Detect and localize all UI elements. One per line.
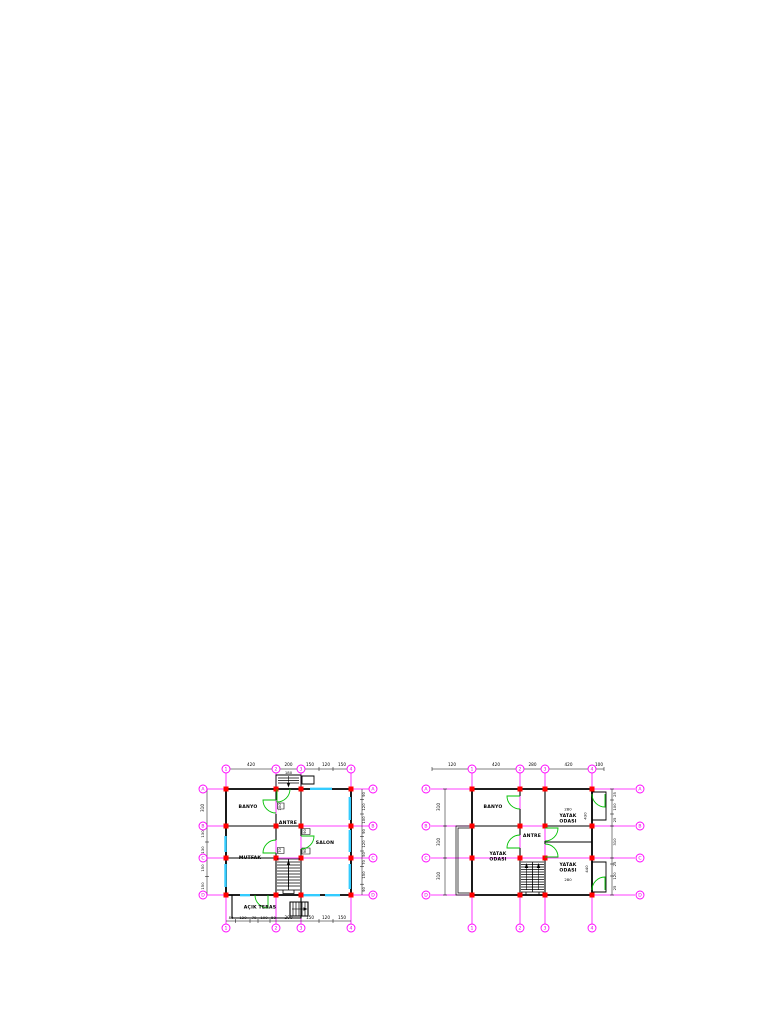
grid-bubble-label: D (201, 893, 205, 899)
dim-label: 100 (260, 915, 268, 920)
room-label-antre: ANTRE (523, 833, 541, 839)
dim-label: 150 (306, 762, 314, 767)
dim-label: 120 (361, 840, 366, 848)
dim-label: 200 (285, 762, 293, 767)
dim-label-porch: 180 (285, 770, 293, 775)
dim-label: 150 (338, 915, 346, 920)
grid-bubble-label: C (638, 856, 641, 862)
dim-label: 90 (361, 887, 366, 892)
entry-porch (276, 775, 314, 789)
porch-stair (278, 776, 299, 788)
dimension-lines (205, 767, 364, 923)
grid-bubble-label: 4 (591, 767, 594, 773)
door-jamb-boxes (278, 803, 311, 854)
grid-bubbles (422, 765, 644, 932)
dimension-lines (432, 767, 614, 895)
floor-plan-left: 1 2 3 4 1 2 3 4 A B C D A B C D BANYO AN… (196, 752, 388, 942)
dim-label: 50 (271, 915, 276, 920)
dim-label: 100 (595, 762, 603, 767)
door-dim-label: 90 (302, 829, 307, 834)
dim-label: 25 (612, 792, 617, 797)
grid-bubble-label: C (371, 856, 374, 862)
room-label-yatak-1: ODASI (559, 819, 576, 825)
room-dim-label: 440 (584, 865, 589, 873)
grid-bubble-label: B (424, 824, 427, 830)
dim-label: 420 (247, 762, 255, 767)
grid-bubble-label: B (638, 824, 641, 830)
grid-bubble-label: D (371, 893, 375, 899)
dim-label: 150 (338, 762, 346, 767)
dim-label: 120 (239, 915, 247, 920)
grid-bubble-label: 1 (471, 926, 474, 932)
room-label-banyo: BANYO (484, 804, 503, 810)
grid-bubble-label: 1 (471, 767, 474, 773)
dim-label: 130 (200, 830, 205, 838)
dim-label: 150 (361, 871, 366, 879)
grid-bubble-label: 2 (275, 926, 278, 932)
grid-bubble-label: D (424, 893, 428, 899)
grid-lines (431, 773, 635, 924)
room-label-yatak-2: YATAK (489, 851, 507, 857)
dim-label: 70 (361, 860, 366, 865)
main-stair (521, 862, 544, 895)
grid-bubble-label: B (371, 824, 374, 830)
grid-bubble-label: D (638, 893, 642, 899)
grid-bubble-label: 4 (591, 926, 594, 932)
room-label-yatak-3: ODASI (559, 868, 576, 874)
dim-label: 420 (565, 762, 573, 767)
dim-label: 200 (285, 915, 293, 920)
dim-label: 150 (200, 882, 205, 890)
room-label-yatak-1: YATAK (559, 813, 577, 819)
dim-label: 310 (436, 838, 441, 846)
room-dim-label: 280 (564, 877, 572, 882)
room-dim-label: 280 (564, 807, 572, 812)
room-label-yatak-3: YATAK (559, 862, 577, 868)
main-stair (277, 859, 300, 894)
dim-label: 120 (361, 803, 366, 811)
grid-bubble-label: 1 (225, 926, 228, 932)
dim-label: 120 (448, 762, 456, 767)
dim-label: 100 (612, 803, 617, 811)
room-label-mutfak: MUTFAK (239, 855, 262, 861)
dim-label: 130 (200, 846, 205, 854)
room-label-yatak-2: ODASI (489, 857, 506, 863)
grid-bubble-label: 3 (544, 767, 547, 773)
dim-label: 150 (200, 864, 205, 872)
dim-label: 80 (229, 915, 234, 920)
dim-label: 280 (529, 762, 537, 767)
grid-bubble-label: 3 (544, 926, 547, 932)
grid-bubble-label: 3 (300, 926, 303, 932)
grid-bubble-label: 1 (225, 767, 228, 773)
dim-label: 50 (361, 852, 366, 857)
document-page: 1 2 3 4 1 2 3 4 A B C D A B C D BANYO AN… (0, 0, 768, 1024)
dim-label: 420 (492, 762, 500, 767)
dim-label: 120 (322, 762, 330, 767)
dim-label: 120 (612, 872, 617, 880)
dim-label: 25 (612, 817, 617, 822)
dim-label: 120 (322, 915, 330, 920)
grid-bubble-label: 2 (275, 767, 278, 773)
room-label-salon: SALON (316, 840, 334, 846)
grid-bubble-label: 4 (350, 767, 353, 773)
room-label-banyo: BANYO (239, 804, 258, 810)
dim-label: 310 (200, 804, 205, 812)
door-dim-label: 90 (302, 848, 307, 853)
grid-bubble-label: 2 (519, 926, 522, 932)
dim-label: 310 (612, 838, 617, 846)
door-dim-label: 70 (277, 848, 282, 853)
grid-bubble-label: B (201, 824, 204, 830)
dim-label: 310 (436, 803, 441, 811)
dim-label: 310 (436, 872, 441, 880)
dim-label: 90 (361, 829, 366, 834)
dim-label: 100 (361, 816, 366, 824)
door-dim-label: 100 (277, 803, 282, 811)
dim-label: 150 (306, 915, 314, 920)
grid-bubble-label: 3 (300, 767, 303, 773)
dim-label: 25 (612, 861, 617, 866)
garden-stair (292, 902, 308, 916)
grid-bubble-label: C (424, 856, 427, 862)
grid-bubble-label: 2 (519, 767, 522, 773)
room-label-antre: ANTRE (279, 820, 297, 826)
dim-label: 70 (252, 915, 257, 920)
grid-bubble-label: 4 (350, 926, 353, 932)
grid-bubble-label: C (201, 856, 204, 862)
dim-label: 90 (361, 792, 366, 797)
room-dim-label: 430 (583, 812, 588, 820)
room-label-acik-teras: AÇIK TERAS (244, 905, 276, 911)
dim-label: 25 (612, 885, 617, 890)
floor-plan-right: 1 2 3 4 1 2 3 4 A B C D A B C D BANYO AN… (420, 752, 660, 942)
